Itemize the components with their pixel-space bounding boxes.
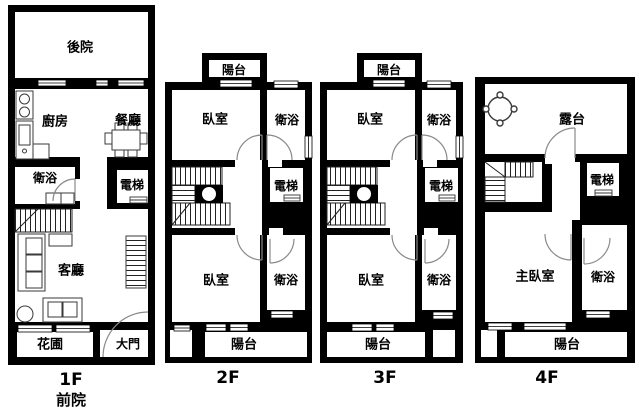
room-label-bathroom-bottom-3f: 衛浴 (426, 272, 452, 287)
floor-label-4f: 4F (535, 368, 558, 388)
ladder-icon (126, 236, 146, 288)
floor-plan-canvas: 後院 廚房 餐廳 衛浴 電梯 客廳 花圃 大門 1F 前院 (0, 0, 640, 411)
room-label-dining: 餐廳 (114, 113, 141, 129)
sofa-icon (18, 234, 45, 291)
room-label-bedroom-top-3f: 臥室 (357, 112, 383, 128)
staircase-icon (172, 167, 230, 225)
door-gap (75, 179, 80, 201)
room-label-backyard: 後院 (67, 40, 93, 56)
room-label-elevator-1f: 電梯 (120, 177, 144, 192)
room-label-flower-bed: 花圃 (37, 337, 63, 353)
door-gap (235, 228, 262, 235)
door-gap (269, 228, 283, 235)
door-gap (423, 160, 437, 167)
loveseat-icon (43, 298, 82, 322)
room-label-bathroom-1f: 衛浴 (32, 170, 58, 185)
room-label-elevator-3f: 電梯 (429, 178, 453, 193)
staircase-icon (327, 167, 385, 225)
floor-1f: 後院 廚房 餐廳 衛浴 電梯 客廳 花圃 大門 1F 前院 (8, 5, 155, 409)
room-label-bathroom-bottom-2f: 衛浴 (273, 272, 299, 287)
stove-icon (16, 91, 33, 119)
room-master-bedroom (485, 212, 572, 322)
room-label-kitchen: 廚房 (42, 114, 68, 130)
room-label-balcony-top-2f: 陽台 (222, 62, 246, 77)
elevator-door-icon (130, 197, 147, 203)
door-gap (268, 160, 282, 167)
room-label-balcony-bottom-3f: 陽台 (365, 337, 391, 353)
floor-3f: 陽台 臥室 衛浴 電梯 臥室 衛浴 陽台 3F (320, 53, 463, 388)
room-label-bedroom-bottom-2f: 臥室 (203, 273, 229, 289)
stair-post-icon (356, 186, 372, 202)
room-label-bathroom-top-3f: 衛浴 (426, 112, 452, 127)
door-gap (545, 153, 575, 164)
floor-label-2f: 2F (216, 368, 239, 388)
round-stool-icon (17, 306, 33, 322)
room-label-bedroom-bottom-3f: 臥室 (358, 273, 384, 289)
room-label-balcony-bottom-2f: 陽台 (231, 337, 257, 353)
room-label-bathroom-top-2f: 衛浴 (274, 112, 300, 127)
door-gap (424, 228, 438, 235)
room-bathroom-4f (582, 225, 627, 310)
utility-nook-3f (433, 330, 455, 357)
floor-sublabel-front-yard: 前院 (56, 391, 86, 409)
door-gap (235, 160, 262, 167)
staircase-icon (15, 209, 72, 232)
utility-nook-2f (170, 330, 192, 357)
floor-plan-page: 後院 廚房 餐廳 衛浴 電梯 客廳 花圃 大門 1F 前院 (0, 0, 640, 411)
room-label-balcony-top-3f: 陽台 (377, 62, 401, 77)
room-label-balcony-4f: 陽台 (554, 337, 580, 353)
room-label-elevator-4f: 電梯 (590, 172, 614, 187)
floor-label-3f: 3F (373, 368, 396, 388)
stair-post-icon (201, 186, 217, 202)
floor-2f: 陽台 臥室 衛浴 電梯 臥室 衛浴 陽台 2F (165, 53, 312, 388)
vanity-icon (46, 193, 74, 204)
room-label-master-bedroom: 主臥室 (515, 269, 554, 285)
hall-4f (552, 162, 580, 220)
elevator-door-icon (284, 195, 300, 201)
room-label-bathroom-4f: 衛浴 (590, 269, 616, 284)
coffee-table-icon (49, 234, 72, 246)
room-label-main-door: 大門 (116, 336, 140, 351)
room-label-terrace: 露台 (559, 112, 585, 128)
elevator-door-icon (439, 195, 455, 201)
door-gap (390, 160, 417, 167)
floor-label-1f: 1F (59, 370, 82, 390)
door-gap (390, 228, 417, 235)
room-label-elevator-2f: 電梯 (274, 178, 298, 193)
elevator-door-icon (595, 190, 612, 196)
room-label-living: 客廳 (58, 263, 84, 279)
floor-4f: 露台 電梯 主臥室 衛浴 陽台 4F (475, 77, 635, 388)
utility-nook-4f (481, 330, 497, 357)
room-label-bedroom-top-2f: 臥室 (202, 112, 228, 128)
